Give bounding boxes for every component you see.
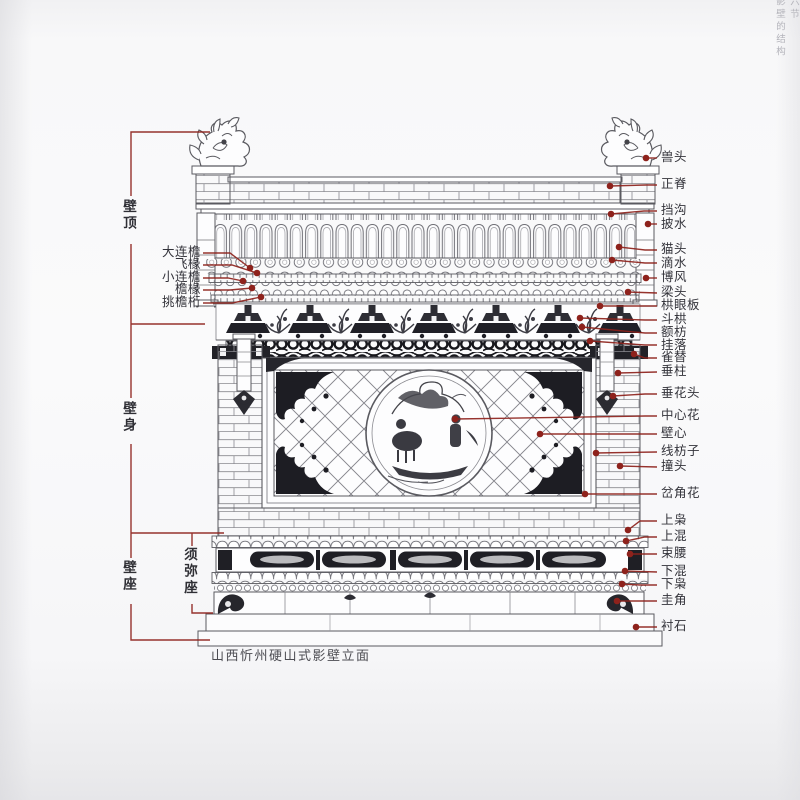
tile-rows — [204, 214, 646, 258]
part-label: 猫头 — [661, 243, 687, 256]
cap-tile-row — [206, 259, 644, 274]
group-label-bizuo: 壁座 — [118, 560, 138, 593]
part-label: 垂花头 — [661, 387, 700, 400]
batten-row — [211, 295, 639, 302]
part-label: 上混 — [661, 530, 687, 543]
hanging-fascia-frieze — [226, 341, 632, 357]
lower-molding — [212, 573, 648, 584]
ridge-cornice-2 — [201, 209, 649, 214]
part-label: 垂柱 — [661, 365, 687, 378]
center-medallion — [366, 370, 492, 496]
group-label-xumizuo: 须弥座 — [179, 547, 199, 597]
part-label: 撞头 — [661, 460, 687, 473]
part-label: 兽头 — [661, 151, 687, 164]
wall-body — [212, 334, 648, 536]
part-label: 雀替 — [661, 351, 687, 364]
bead-row — [214, 584, 646, 592]
part-label: 披水 — [661, 218, 687, 231]
part-label: 线枋子 — [661, 445, 700, 458]
eave-rafter-row — [210, 283, 640, 295]
flying-rafter-row — [209, 274, 641, 283]
book-page: 六节 影壁的结构 — [0, 0, 800, 800]
ridge-cornice — [196, 203, 654, 209]
base-stone-lower — [198, 631, 662, 646]
main-ridge — [230, 182, 620, 203]
part-label: 滴水 — [661, 257, 687, 270]
group-label-biding: 壁顶 — [118, 199, 138, 232]
part-label: 壁心 — [661, 427, 687, 440]
part-label: 栱眼板 — [661, 299, 700, 312]
eaves-section — [206, 259, 644, 307]
part-label: 束腰 — [661, 547, 687, 560]
part-label: 挑檐桁 — [139, 296, 201, 309]
part-label: 岔角花 — [661, 487, 700, 500]
group-label-bishen: 壁身 — [118, 401, 138, 434]
foundation-stones — [198, 614, 662, 646]
part-label: 挡沟 — [661, 204, 687, 217]
elevation-drawing — [0, 0, 800, 800]
sumeru-pedestal — [212, 536, 648, 614]
figure-caption: 山西忻州硬山式影壁立面 — [211, 645, 371, 664]
upper-molding — [212, 536, 648, 548]
part-label: 中心花 — [661, 409, 700, 422]
part-label: 下枭 — [661, 578, 687, 591]
lower-brick-band — [218, 508, 640, 536]
ridge-cap — [228, 177, 622, 182]
dougong-band — [216, 304, 642, 340]
base-stone-upper — [206, 614, 654, 631]
part-label: 圭角 — [661, 594, 687, 607]
part-label: 衬石 — [661, 620, 687, 633]
part-label: 博风 — [661, 271, 687, 284]
part-label: 正脊 — [661, 178, 687, 191]
part-label: 上枭 — [661, 514, 687, 527]
